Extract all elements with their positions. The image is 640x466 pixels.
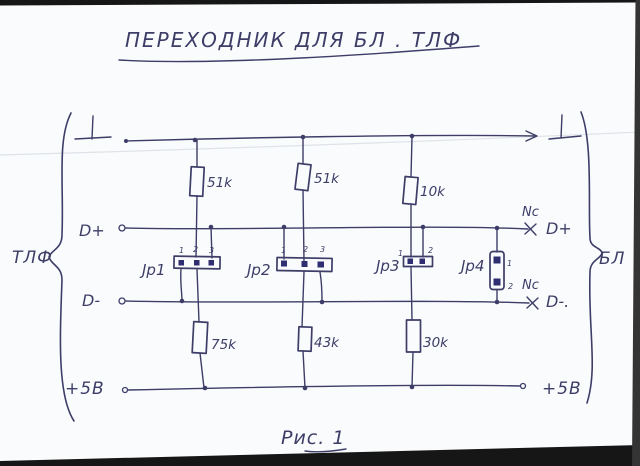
jp4-pad2 (494, 279, 501, 286)
jp1-pad3 (209, 260, 215, 266)
dminus-right-label: D-. (546, 292, 569, 311)
resistor-value: 75k (211, 337, 237, 353)
jumper-jp2-label: Jp2 (244, 261, 271, 279)
schematic-title: ПЕРЕХОДНИК ДЛЯ БЛ . ТЛФ (125, 28, 462, 52)
left-brace-label: ТЛФ (12, 248, 53, 268)
jumper-jp4-label: Jp4 (458, 257, 485, 275)
jumper-jp3-label: Jp3 (373, 257, 400, 275)
jp1-pin-number: 1 (179, 246, 184, 255)
ground-rail-wire (125, 135, 536, 141)
jp2-pad1 (281, 261, 287, 267)
jp2-pin-number: 3 (320, 245, 325, 254)
jp3-pad2 (420, 259, 426, 265)
caption-underline (305, 449, 346, 452)
p5v-left-terminal (123, 388, 128, 393)
jp2-pin-number: 2 (303, 245, 308, 254)
dplus-left-label: D+ (79, 221, 105, 240)
p5v-right-label: +5В (542, 379, 582, 399)
jp1-pin-number: 3 (209, 246, 214, 255)
jp3-pad1 (408, 259, 414, 265)
resistor-value: 10k (420, 184, 446, 200)
jp4-pin-number: 2 (508, 282, 513, 291)
ground-rail-left-end (124, 139, 128, 143)
dminus-left-terminal (119, 298, 125, 304)
p5v-rail-wire (128, 385, 521, 390)
resistor-51k-top2 (295, 163, 311, 190)
jp3-pin-number: 2 (428, 246, 433, 255)
schematic-canvas: ПЕРЕХОДНИК ДЛЯ БЛ . ТЛФ ТЛФ БЛ Nc D+ D+ … (0, 0, 640, 466)
right-brace-label: БЛ (599, 249, 625, 269)
jp1-pad2 (194, 260, 200, 266)
resistor-75k (192, 322, 208, 354)
dplus-rail-wire (126, 227, 528, 229)
resistor-51k-top1 (190, 167, 204, 197)
dplus-left-terminal (119, 225, 125, 231)
dminus-left-label: D- (82, 291, 100, 310)
jumper-jp1-label: Jp1 (139, 261, 166, 279)
resistor-30k (407, 320, 421, 352)
resistor-10k (403, 177, 418, 205)
resistor-43k (298, 327, 312, 351)
p5v-right-terminal (521, 384, 526, 389)
jp2-pad2 (302, 261, 308, 267)
resistor-value: 51k (207, 175, 233, 191)
photo-top-edge (0, 0, 640, 6)
jp4-pad1 (494, 257, 501, 264)
jp1-pin-number: 2 (193, 245, 198, 254)
resistor-value: 51k (314, 171, 340, 187)
jp1-pin1-wire (181, 269, 182, 300)
jp2-pad3 (318, 262, 325, 268)
jp2-pin3-wire (320, 272, 322, 301)
ground-symbol-left (75, 116, 111, 139)
figure-caption: Рис. 1 (281, 427, 345, 449)
resistor-value: 30k (423, 335, 449, 351)
dplus-right-label: D+ (546, 219, 572, 238)
p5v-left-label: +5В (65, 379, 105, 399)
dplus-nc-label: Nc (522, 205, 539, 220)
dminus-nc-label: Nc (522, 278, 539, 293)
scanned-schematic-photo: ПЕРЕХОДНИК ДЛЯ БЛ . ТЛФ ТЛФ БЛ Nc D+ D+ … (0, 0, 640, 466)
paper-crease (0, 132, 640, 155)
dminus-rail-wire (126, 301, 529, 303)
photo-right-edge (632, 0, 640, 466)
jp2-pin-number: 1 (281, 246, 286, 255)
jp1-pad1 (179, 260, 185, 266)
resistor-value: 43k (314, 335, 340, 351)
jp4-pin-number: 1 (507, 259, 512, 268)
